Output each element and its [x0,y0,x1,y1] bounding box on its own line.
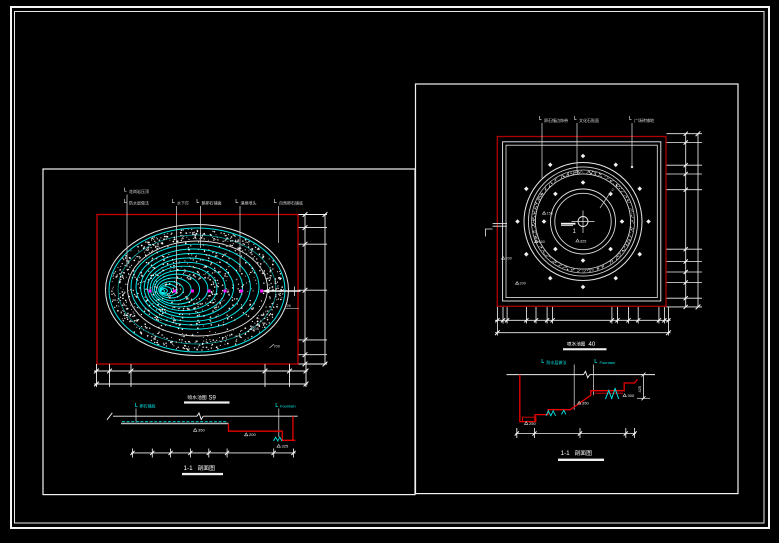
svg-text:自然卵石铺底: 自然卵石铺底 [279,200,303,206]
svg-text:250: 250 [529,421,536,426]
svg-text:防水层做法: 防水层做法 [129,200,149,206]
svg-text:150: 150 [539,240,545,244]
svg-text:S9: S9 [209,396,217,402]
svg-text:卵石铺底: 卵石铺底 [140,402,156,408]
svg-text:26: 26 [287,304,291,308]
svg-text:涌泉喷头: 涌泉喷头 [241,200,257,206]
svg-text:200: 200 [520,282,526,286]
svg-text:剖面图: 剖面图 [575,449,593,457]
svg-text:水下灯: 水下灯 [177,200,189,206]
svg-text:350: 350 [198,428,205,433]
svg-text:350: 350 [582,401,589,406]
svg-text:剖面图: 剖面图 [198,464,216,472]
svg-text:200: 200 [506,257,512,261]
svg-text:1-1: 1-1 [184,465,194,472]
svg-text:205: 205 [253,327,259,331]
svg-text:文化石贴面: 文化石贴面 [579,117,599,123]
svg-text:Fountain: Fountain [280,403,296,408]
svg-text:防水层做法: 防水层做法 [547,359,567,365]
svg-text:425: 425 [638,386,642,392]
svg-text:200: 200 [249,432,256,437]
svg-text:325: 325 [580,240,586,244]
svg-text:40: 40 [589,342,596,348]
svg-text:300: 300 [628,393,635,398]
svg-text:鹅卵石铺面: 鹅卵石铺面 [202,200,222,206]
svg-text:325: 325 [282,444,289,449]
svg-text:150: 150 [547,212,553,216]
svg-text:卵石镶边饰带: 卵石镶边饰带 [544,117,568,123]
svg-text:花岗岩压顶: 花岗岩压顶 [129,188,149,194]
svg-text:1-1: 1-1 [561,450,571,457]
svg-text:Fountain: Fountain [600,360,616,365]
svg-text:喷水池图: 喷水池图 [188,394,207,401]
svg-text:喷水池图: 喷水池图 [567,341,586,348]
svg-text:700: 700 [274,345,280,349]
svg-text:广场砖铺地: 广场砖铺地 [634,117,654,123]
